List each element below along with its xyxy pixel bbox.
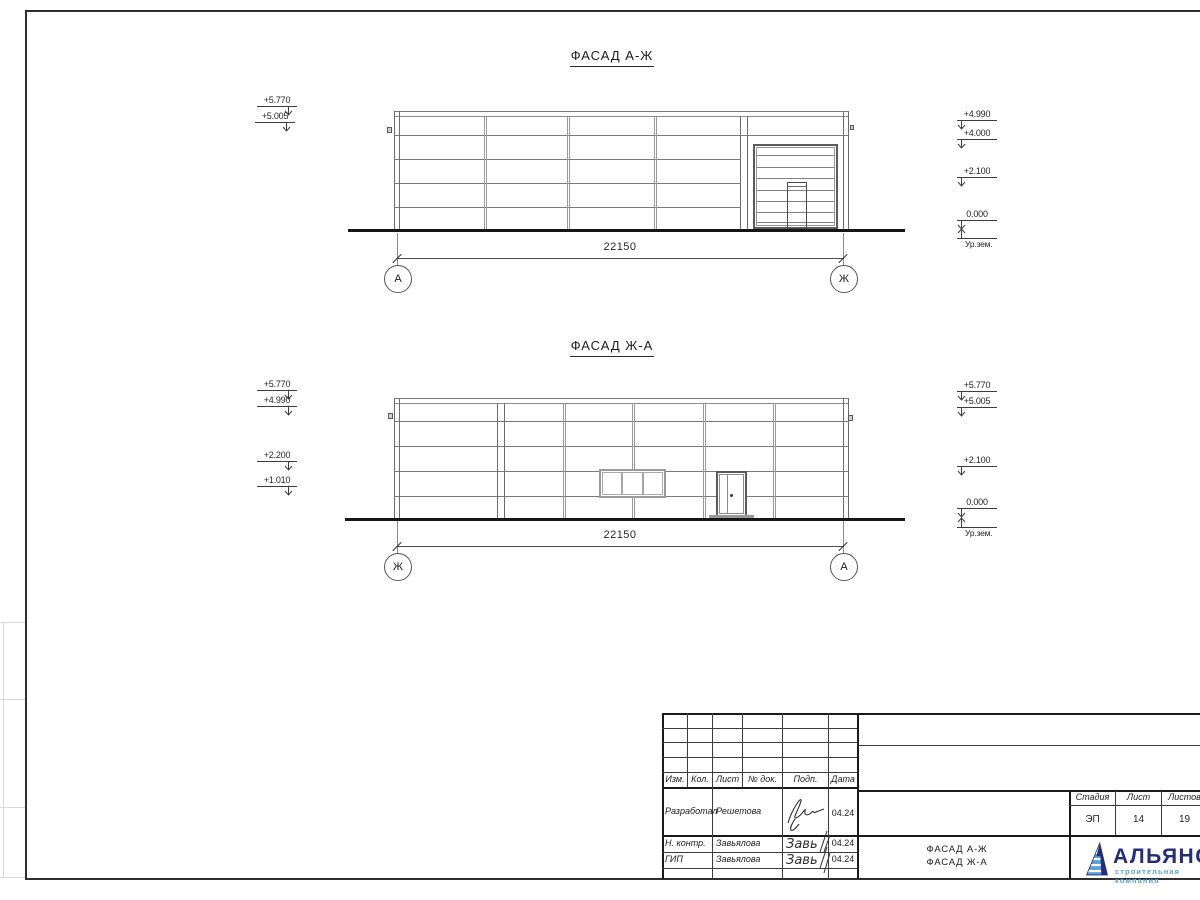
panel-joint-line	[394, 446, 849, 447]
wicket-door-top-line	[788, 186, 806, 187]
elevation-arrow-down-icon	[284, 461, 293, 471]
stage-header: Стадия	[1070, 792, 1115, 803]
elevation-mark: +5.770	[257, 95, 297, 107]
elevation-mark: 0.000	[957, 209, 997, 221]
axis-circle-right: А	[830, 553, 858, 581]
titleblock-line	[662, 835, 1200, 837]
axis-label: Ж	[839, 273, 849, 285]
elevation-mark: +2.100	[957, 455, 997, 467]
elevation-value: +5.770	[957, 380, 997, 390]
revision-header: Изм.	[663, 774, 687, 785]
elevation-arrow-down-icon	[957, 177, 966, 187]
elevation-arrow-down-icon	[957, 407, 966, 417]
door-divider	[727, 474, 728, 514]
elevation-mark: +4.990	[257, 395, 297, 407]
elevation-arrow-down-icon	[282, 122, 291, 132]
revision-header: Подп.	[783, 774, 828, 785]
sheet-number: 14	[1116, 814, 1161, 825]
stage-header: Листов	[1162, 792, 1200, 803]
elevation-mark: +5.005	[255, 111, 295, 123]
extension-line	[397, 521, 398, 553]
elevation-value: 0.000	[957, 209, 997, 219]
margin-stamp-line	[3, 622, 4, 877]
elevation-value: +1.010	[257, 475, 297, 485]
elevation-mark: +5.770	[257, 379, 297, 391]
ground-level-mark: Ур.зем.	[957, 527, 997, 538]
elevation-mark: +4.990	[957, 109, 997, 121]
elevation-arrow-down-icon	[957, 466, 966, 476]
downpipe-bracket	[388, 413, 393, 419]
signature-name: Завьялова	[716, 838, 760, 849]
elevation-value: +5.770	[257, 95, 297, 105]
corner-post-left	[394, 398, 400, 519]
facade-mullion	[654, 117, 657, 230]
company-logo-tagline: строительная компания	[1115, 867, 1200, 885]
elevation-mark: +2.100	[957, 166, 997, 178]
facade-mullion	[773, 403, 776, 519]
revision-header: Лист	[713, 774, 742, 785]
signature-name: Решетова	[716, 806, 761, 817]
gate-slat-line	[757, 167, 834, 168]
corner-post-left	[394, 111, 400, 230]
elevation-value: +2.100	[957, 166, 997, 176]
elevation-arrow-down-icon	[284, 406, 293, 416]
panel-joint-line	[394, 135, 849, 136]
elevation-mark: +2.200	[257, 450, 297, 462]
elevation-arrow-up-icon	[957, 517, 966, 527]
facade-bottom-title: ФАСАД Ж-А	[570, 338, 654, 357]
margin-stamp-line	[0, 877, 25, 878]
elevation-value: +4.990	[957, 109, 997, 119]
signature-date: 04.24	[829, 854, 857, 865]
facade-top-title: ФАСАД А-Ж	[570, 48, 654, 67]
signature-role: Н. контр.	[665, 838, 706, 849]
company-logo-pyramid-icon	[1086, 842, 1108, 876]
facade-mullion	[632, 403, 635, 519]
company-logo-name: АЛЬЯНС	[1113, 845, 1200, 869]
downpipe-bracket	[848, 415, 853, 421]
downpipe-bracket	[387, 127, 392, 133]
elevation-value: +5.005	[255, 111, 295, 121]
elevation-arrow-down-icon	[284, 486, 293, 496]
parapet-bottom-line	[394, 403, 849, 404]
axis-label: А	[840, 561, 847, 573]
window-mullion	[621, 472, 623, 495]
elevation-mark: +5.770	[957, 380, 997, 392]
revision-header: Кол.	[688, 774, 712, 785]
signature-scribble	[783, 791, 827, 835]
frame-left-border	[25, 10, 27, 880]
signature-date: 04.24	[829, 838, 857, 849]
elevation-mark: +4.000	[957, 128, 997, 140]
ribbon-window-frame	[602, 472, 663, 495]
drawing-sheet: { "facade_top": { "title": "ФАСАД А-Ж", …	[0, 0, 1200, 900]
extension-line	[397, 233, 398, 265]
signature-role: ГИП	[665, 854, 683, 865]
gate-bay-post	[497, 403, 505, 519]
corner-post-right	[843, 111, 849, 230]
elevation-value: +2.200	[257, 450, 297, 460]
sheet-name-line2: ФАСАД Ж-А	[857, 857, 1057, 868]
gate-bay-post	[740, 116, 748, 230]
facade-mullion	[484, 117, 487, 230]
elevation-value: +2.100	[957, 455, 997, 465]
elevation-arrow-up-icon	[957, 228, 966, 238]
sheet-name-line1: ФАСАД А-Ж	[857, 844, 1057, 855]
signature-date: 04.24	[829, 808, 857, 819]
facade-mullion	[563, 403, 566, 519]
axis-circle-right: Ж	[830, 265, 858, 293]
axis-circle-left: Ж	[384, 553, 412, 581]
door-handle	[730, 494, 733, 497]
elevation-mark: 0.000	[957, 497, 997, 509]
dimension-value: 22150	[580, 529, 660, 541]
frame-bottom-border	[25, 878, 1200, 880]
titleblock-row-line	[1069, 805, 1200, 806]
dimension-value: 22150	[580, 241, 660, 253]
elevation-value: +5.770	[257, 379, 297, 389]
revision-header: № док.	[743, 774, 782, 785]
elevation-value: +4.000	[957, 128, 997, 138]
elevation-value: +4.990	[257, 395, 297, 405]
axis-label: Ж	[393, 561, 403, 573]
titleblock-row-line	[857, 745, 1200, 746]
ground-line	[345, 518, 905, 521]
sheet-count: 19	[1162, 814, 1200, 825]
downpipe-bracket	[850, 125, 854, 130]
axis-circle-left: А	[384, 265, 412, 293]
signature-role: Разработал	[665, 806, 717, 817]
parapet-bottom-line	[394, 116, 849, 117]
extension-line	[843, 521, 844, 553]
wicket-door	[787, 182, 807, 229]
extension-line	[843, 233, 844, 265]
titleblock-col-line	[712, 713, 713, 879]
frame-top-border	[25, 10, 1200, 12]
facade-mullion	[703, 403, 706, 519]
elevation-mark: +1.010	[257, 475, 297, 487]
ground-level-mark: Ур.зем.	[957, 238, 997, 249]
elevation-value: 0.000	[957, 497, 997, 507]
elevation-mark: +5.005	[957, 396, 997, 408]
elevation-value: Ур.зем.	[957, 239, 997, 249]
parapet-top-line	[394, 111, 849, 112]
facade-mullion	[567, 117, 570, 230]
ground-line	[348, 229, 905, 232]
elevation-value: +5.005	[957, 396, 997, 406]
dimension-line	[397, 546, 844, 547]
dimension-line	[397, 258, 844, 259]
stage-header: Лист	[1116, 792, 1161, 803]
elevation-arrow-down-icon	[957, 139, 966, 149]
titleblock-border	[662, 713, 664, 879]
gate-slat-line	[757, 178, 834, 179]
parapet-top-line	[394, 398, 849, 399]
svg-text:Завь: Завь	[786, 853, 818, 868]
signature-scribble: Завь	[784, 849, 830, 871]
axis-label: А	[394, 273, 401, 285]
revision-header: Дата	[829, 774, 857, 785]
gate-slat-line	[757, 155, 834, 156]
stage-value: ЭП	[1070, 814, 1115, 825]
signature-name: Завьялова	[716, 854, 760, 865]
elevation-value: Ур.зем.	[957, 528, 997, 538]
window-mullion	[642, 472, 644, 495]
panel-joint-line	[394, 421, 849, 422]
